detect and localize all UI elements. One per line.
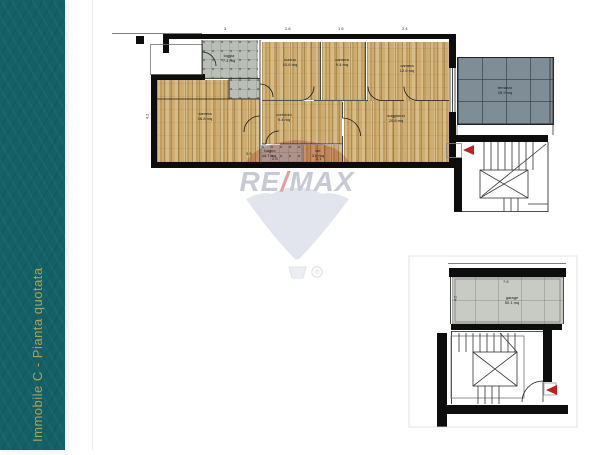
wall-left-lower: [151, 76, 157, 168]
room-cucina-floor: [262, 42, 320, 100]
room-label-camera2: camera12.6 mq: [400, 63, 414, 73]
chimney-marker: [136, 36, 144, 44]
entry-arrow-icon: [463, 145, 474, 155]
stair2-wall-right: [543, 330, 552, 382]
dimension-text: 2.1: [316, 156, 322, 161]
dimension-text: 1.6: [338, 26, 344, 31]
dimension-text: 3.5: [246, 151, 252, 156]
floor-plan: loggia7.4 mq cucina10.6 mq camera9.4 mq …: [0, 0, 600, 450]
dimension-text: 4.2: [452, 296, 457, 302]
stair1-wall-top: [454, 135, 548, 142]
garage-wall-top: [449, 268, 566, 277]
plan-title: Immobile C - Pianta quotata: [30, 267, 45, 442]
dimension-text: 2.8: [272, 156, 278, 161]
wall-notch-bottom: [151, 74, 205, 80]
room-anteroom-floor: [229, 78, 260, 99]
wall-right-upper: [449, 34, 456, 68]
dimension-text: 3: [224, 26, 226, 31]
wall-bottom: [151, 162, 456, 168]
room-label-camera3: camera16.8 mq: [198, 111, 212, 121]
room-label-camera1: camera9.4 mq: [335, 57, 348, 67]
dimension-text: 2.4: [402, 26, 408, 31]
room-label-loggia: loggia7.4 mq: [223, 53, 235, 63]
wall-top: [163, 34, 456, 39]
stair1-wall-left: [454, 158, 462, 212]
dimension-text: 4.2: [144, 114, 149, 120]
room-label-garage: garage50.1 mq: [505, 295, 519, 305]
room-label-soggiorno: soggiorno20.8 mq: [387, 113, 405, 123]
dimension-text: 2.6: [285, 26, 291, 31]
room-soggiorno-floor: [344, 101, 449, 162]
room-camera1-floor: [322, 42, 365, 100]
page-edge-line: [92, 0, 93, 450]
entry-arrow-icon: [546, 385, 557, 395]
sidebar: Immobile C - Pianta quotata: [0, 0, 65, 450]
stair2-wall-bottom: [446, 405, 568, 414]
wall-left-upper: [163, 39, 169, 53]
room-label-corridoio: corridoio9.4 mq: [276, 112, 291, 122]
dimension-text: 7.6: [503, 279, 509, 284]
room-corridoio-floor: [262, 101, 342, 144]
room-label-cucina: cucina10.6 mq: [283, 57, 297, 67]
room-label-terrazzo: terrazzo25.9 mq: [498, 85, 512, 95]
room-camera3-floor-b: [157, 99, 260, 162]
